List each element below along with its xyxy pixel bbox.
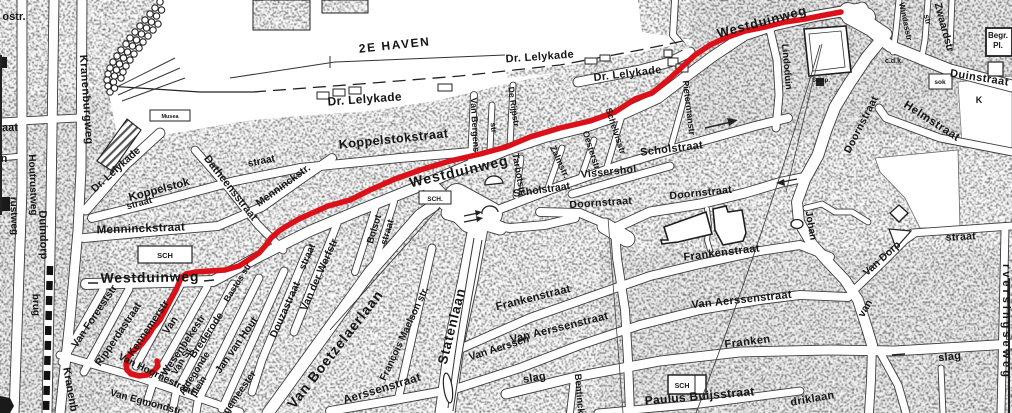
svg-text:Begr.: Begr.	[988, 31, 1008, 40]
svg-text:aat: aat	[2, 122, 18, 134]
svg-text:Duindorp: Duindorp	[36, 210, 50, 260]
svg-text:SCH.: SCH.	[427, 196, 443, 203]
svg-text:K: K	[976, 95, 983, 105]
svg-text:SCH: SCH	[675, 383, 690, 390]
svg-text:Seinp.: Seinp.	[812, 78, 830, 84]
svg-text:slag: slag	[938, 350, 962, 364]
svg-text:Westduinweg: Westduinweg	[100, 268, 199, 286]
svg-text:Houtrustweg: Houtrustweg	[26, 154, 39, 215]
svg-text:rversingseweg: rversingseweg	[1000, 264, 1012, 380]
svg-text:ostr.: ostr.	[2, 11, 25, 23]
svg-text:brug: brug	[30, 294, 42, 317]
svg-text:Musea: Musea	[161, 114, 179, 120]
svg-text:straat: straat	[945, 230, 976, 244]
svg-text:rustweg: rustweg	[7, 197, 19, 236]
svg-text:n: n	[1, 153, 8, 165]
svg-text:Pl.: Pl.	[993, 41, 1003, 50]
svg-text:str: str	[488, 122, 498, 133]
svg-text:SCH: SCH	[157, 251, 173, 260]
svg-text:sok: sok	[934, 79, 946, 86]
svg-text:c.d.k.: c.d.k.	[885, 58, 903, 65]
